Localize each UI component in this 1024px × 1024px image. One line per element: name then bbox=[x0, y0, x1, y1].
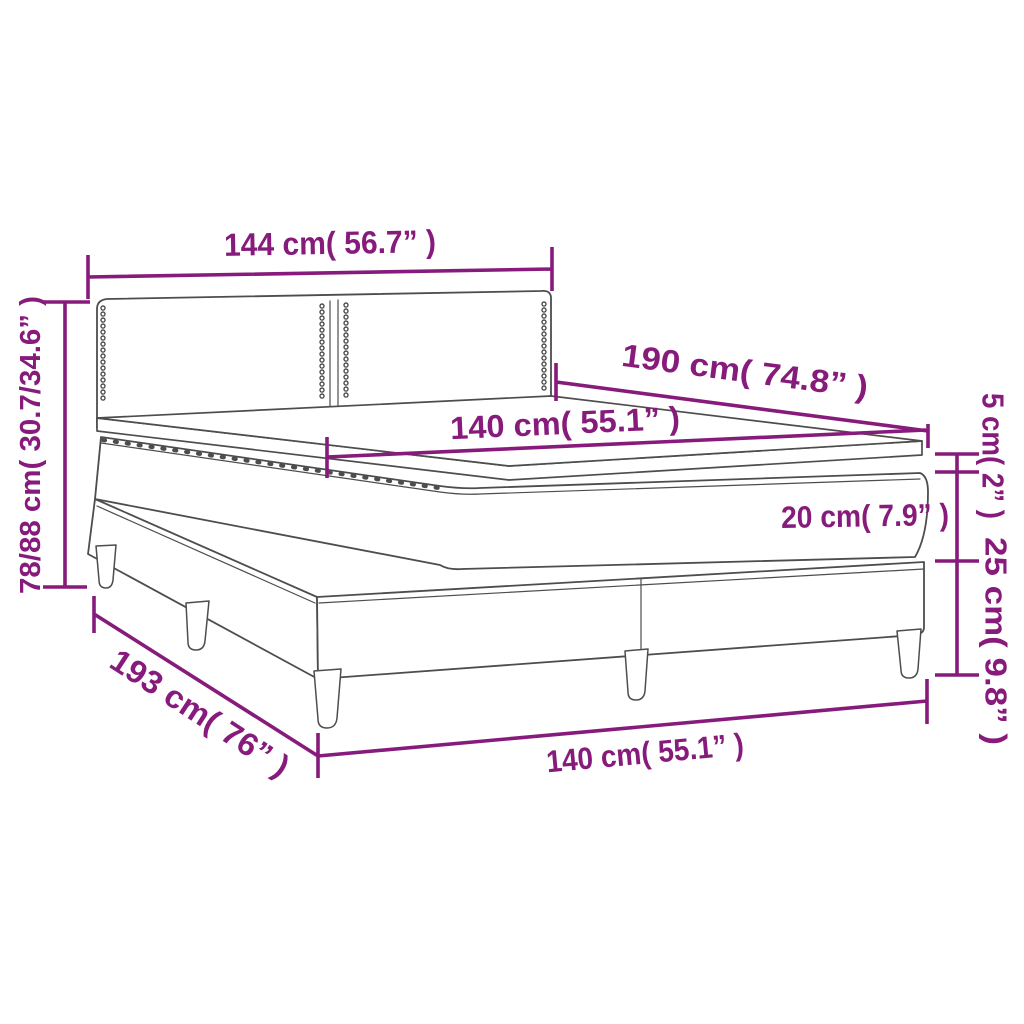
dim-base-width: 140 cm( 55.1” ) bbox=[318, 679, 927, 779]
dim-height-stack: 5 cm( 2” ) 25 cm( 9.8” ) bbox=[935, 393, 1014, 745]
label-total-height: 78/88 cm( 30.7/34.6” ) bbox=[15, 296, 47, 594]
dim-mattress-thickness: 20 cm( 7.9” ) bbox=[781, 497, 950, 535]
base-foot-face bbox=[317, 562, 924, 679]
bed-leg bbox=[897, 629, 921, 678]
dim-line bbox=[42, 302, 90, 587]
label-topper-thickness: 5 cm( 2” ) bbox=[976, 393, 1011, 519]
bed-leg bbox=[186, 601, 209, 650]
dim-headboard-width: 144 cm( 56.7” ) bbox=[88, 223, 552, 299]
bed-leg bbox=[314, 669, 341, 728]
label-base-height: 25 cm( 9.8” ) bbox=[979, 537, 1014, 745]
bed-leg bbox=[625, 649, 648, 700]
bed-leg bbox=[96, 545, 116, 588]
label-base-length: 193 cm( 76” ) bbox=[104, 642, 296, 784]
bed-dimension-diagram: 144 cm( 56.7” ) 78/88 cm( 30.7/34.6” ) 1… bbox=[0, 0, 1024, 1024]
dim-total-height: 78/88 cm( 30.7/34.6” ) bbox=[15, 296, 90, 594]
label-headboard-width: 144 cm( 56.7” ) bbox=[224, 223, 437, 263]
dim-line bbox=[935, 454, 979, 675]
diagram-svg: 144 cm( 56.7” ) 78/88 cm( 30.7/34.6” ) 1… bbox=[0, 0, 1024, 1024]
label-mattress-thickness: 20 cm( 7.9” ) bbox=[781, 497, 950, 535]
